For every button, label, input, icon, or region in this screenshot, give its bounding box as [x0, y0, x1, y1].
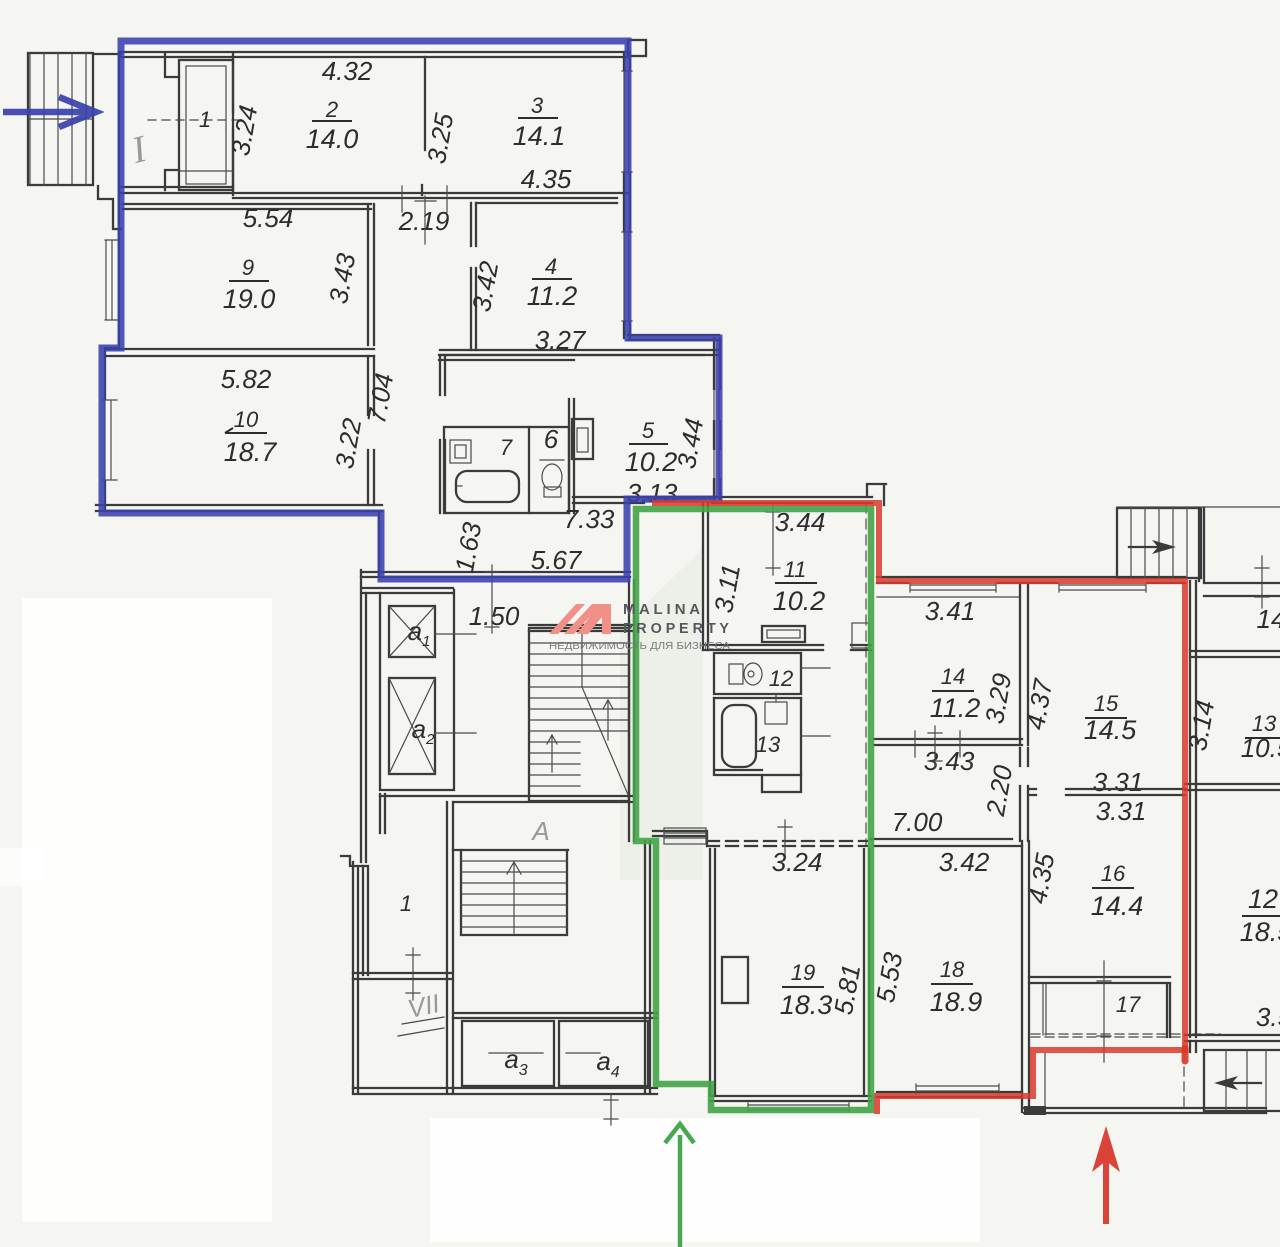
- svg-text:3.31: 3.31: [1093, 767, 1144, 797]
- svg-text:7.00: 7.00: [892, 807, 943, 837]
- svg-text:6: 6: [544, 424, 559, 454]
- svg-text:3.41: 3.41: [925, 596, 976, 626]
- svg-text:А: А: [530, 816, 549, 846]
- svg-text:18.9: 18.9: [930, 987, 983, 1017]
- svg-text:19.0: 19.0: [223, 284, 276, 314]
- svg-text:4.35: 4.35: [521, 164, 572, 194]
- svg-text:19: 19: [791, 960, 815, 985]
- svg-text:M A L I N A: M A L I N A: [623, 602, 701, 618]
- svg-text:12: 12: [1248, 884, 1278, 914]
- svg-text:5.54: 5.54: [243, 203, 294, 233]
- svg-text:18.5: 18.5: [1240, 917, 1280, 947]
- svg-text:10.2: 10.2: [625, 447, 678, 477]
- svg-text:1: 1: [400, 891, 412, 916]
- svg-text:14.5: 14.5: [1084, 715, 1138, 745]
- svg-text:11: 11: [784, 557, 807, 582]
- svg-text:3.31: 3.31: [1096, 796, 1147, 826]
- svg-text:3: 3: [531, 93, 544, 118]
- svg-text:12: 12: [769, 666, 793, 691]
- svg-text:НЕДВИЖИМОСТЬ ДЛЯ БИЗНЕСА: НЕДВИЖИМОСТЬ ДЛЯ БИЗНЕСА: [549, 641, 730, 652]
- svg-text:9: 9: [242, 255, 254, 280]
- svg-text:3.42: 3.42: [939, 847, 990, 877]
- svg-text:11.2: 11.2: [930, 693, 981, 723]
- svg-text:18: 18: [940, 957, 965, 982]
- svg-text:16: 16: [1101, 861, 1126, 886]
- svg-text:4: 4: [545, 254, 557, 279]
- svg-text:14: 14: [1257, 604, 1280, 634]
- svg-text:4.32: 4.32: [322, 56, 373, 86]
- svg-text:7.33: 7.33: [564, 504, 615, 534]
- svg-text:7: 7: [500, 435, 513, 460]
- svg-text:14: 14: [941, 664, 965, 689]
- svg-text:5.82: 5.82: [221, 364, 272, 394]
- svg-text:10.5: 10.5: [1241, 733, 1280, 763]
- svg-text:2.19: 2.19: [398, 206, 450, 236]
- svg-text:5: 5: [642, 418, 655, 443]
- svg-text:18.3: 18.3: [780, 990, 833, 1020]
- svg-text:13: 13: [756, 732, 781, 757]
- svg-text:14.1: 14.1: [513, 121, 566, 151]
- svg-text:10: 10: [234, 407, 259, 432]
- svg-text:11.2: 11.2: [527, 281, 578, 311]
- svg-text:3.24: 3.24: [772, 847, 823, 877]
- svg-text:3.27: 3.27: [535, 325, 587, 355]
- svg-text:10.2: 10.2: [773, 586, 826, 616]
- svg-text:14.0: 14.0: [306, 124, 359, 154]
- svg-text:P R O P E R T Y: P R O P E R T Y: [623, 621, 729, 637]
- svg-text:17: 17: [1116, 992, 1141, 1017]
- svg-text:18.7: 18.7: [224, 437, 278, 467]
- svg-text:15: 15: [1094, 691, 1119, 716]
- svg-text:14.4: 14.4: [1091, 891, 1144, 921]
- svg-text:5.67: 5.67: [531, 545, 583, 575]
- svg-text:3.5: 3.5: [1256, 1002, 1280, 1032]
- svg-text:1: 1: [199, 107, 211, 132]
- svg-text:2: 2: [325, 97, 338, 122]
